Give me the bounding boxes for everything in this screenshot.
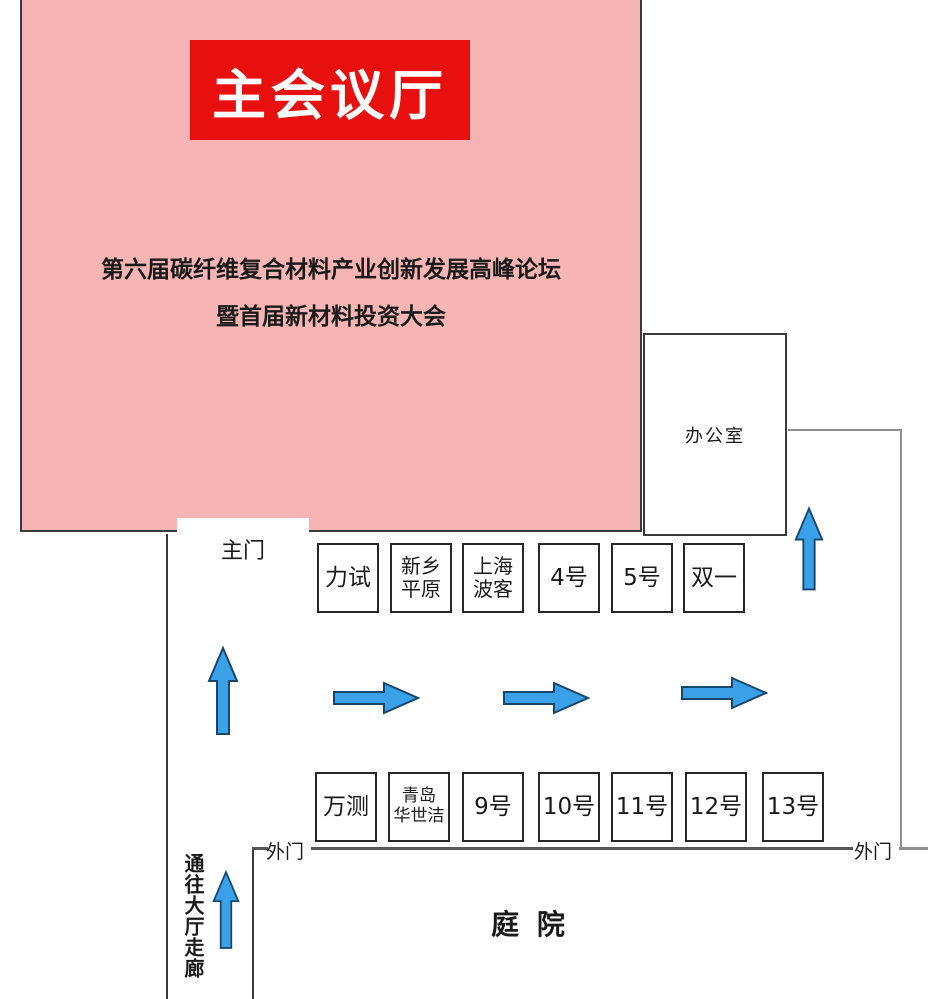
booth-top-3: 上海 波客 bbox=[462, 543, 524, 613]
courtyard-label: 庭 院 bbox=[400, 903, 660, 943]
wall-bottom-segment-right bbox=[899, 847, 928, 850]
main-door-opening bbox=[177, 518, 309, 534]
booth-bottom-5: 11号 bbox=[611, 772, 673, 842]
outer-door-right-label: 外门 bbox=[854, 837, 892, 864]
booth-bottom-4: 10号 bbox=[538, 772, 600, 842]
right-arrow-icon-2 bbox=[502, 681, 590, 719]
wall-bottom-segment-middle bbox=[311, 847, 853, 850]
main-door-label: 主门 bbox=[177, 533, 309, 565]
hall-title-banner: 主会议厅 bbox=[190, 40, 470, 140]
up-arrow-icon bbox=[206, 645, 240, 741]
wall-right-horizontal bbox=[788, 429, 902, 431]
office-room: 办公室 bbox=[643, 333, 787, 536]
booth-bottom-6: 12号 bbox=[685, 772, 747, 842]
up-arrow-icon-right bbox=[793, 504, 825, 598]
event-subtitle: 第六届碳纤维复合材料产业创新发展高峰论坛 暨首届新材料投资大会 bbox=[20, 257, 642, 331]
booth-top-5: 5号 bbox=[611, 543, 673, 613]
booth-bottom-2: 青岛 华世洁 bbox=[388, 772, 450, 842]
wall-left bbox=[166, 534, 168, 999]
wall-corridor-inner bbox=[252, 847, 254, 999]
booth-top-6: 双一 bbox=[683, 543, 745, 613]
floor-plan: 主会议厅 第六届碳纤维复合材料产业创新发展高峰论坛 暨首届新材料投资大会 主门 … bbox=[0, 0, 928, 999]
booth-bottom-7: 13号 bbox=[762, 772, 824, 842]
booth-top-4: 4号 bbox=[538, 543, 600, 613]
corridor-label: 通往大厅走廊 bbox=[179, 853, 208, 979]
right-arrow-icon-1 bbox=[332, 681, 420, 719]
hall-title: 主会议厅 bbox=[212, 51, 448, 130]
booth-bottom-1: 万测 bbox=[315, 772, 377, 842]
outer-door-left-label: 外门 bbox=[266, 837, 304, 864]
booth-top-1: 力试 bbox=[317, 543, 379, 613]
right-arrow-icon-3 bbox=[680, 676, 768, 714]
wall-right-vertical bbox=[900, 429, 902, 849]
event-subtitle-line2: 暨首届新材料投资大会 bbox=[20, 304, 642, 332]
office-label: 办公室 bbox=[685, 422, 745, 448]
event-subtitle-line1: 第六届碳纤维复合材料产业创新发展高峰论坛 bbox=[20, 257, 642, 285]
up-arrow-icon-corridor bbox=[211, 866, 241, 958]
booth-bottom-3: 9号 bbox=[462, 772, 524, 842]
booth-top-2: 新乡 平原 bbox=[390, 543, 452, 613]
